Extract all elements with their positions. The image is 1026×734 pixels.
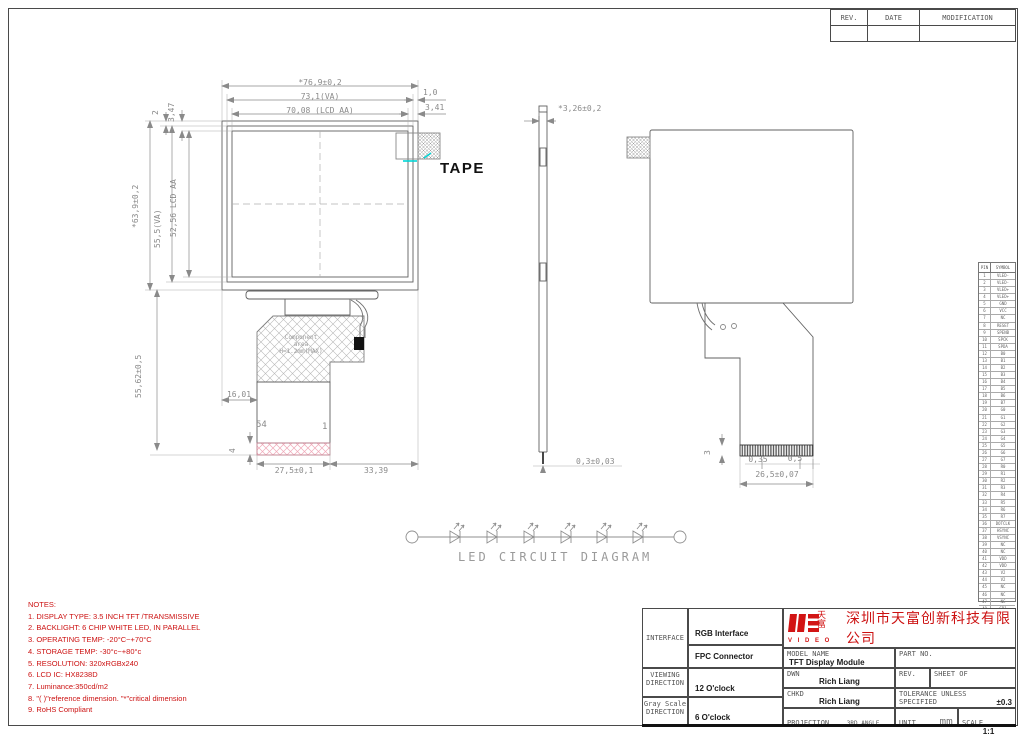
dim-rear-strip: 3 [703, 450, 712, 455]
partno-label: PART NO. [899, 650, 1015, 658]
grayscale-label-cell: Gray Scale DIRECTION [642, 697, 688, 726]
dim-rear-finger-width: 0,35 [742, 455, 774, 464]
note-item: 7. Luminance:350cd/m2 [28, 681, 200, 693]
pin-header: PIN [979, 263, 991, 272]
notes-list: 1. DISPLAY TYPE: 3.5 INCH TFT /TRANSMISS… [28, 611, 200, 716]
pin-table-row: 25 G5 [979, 443, 1015, 450]
pin-table-row: 7 NC [979, 315, 1015, 322]
pin-table-row: 5 GND [979, 301, 1015, 308]
dwn-value: Rich Liang [819, 677, 894, 686]
pin-table-row: 23 G3 [979, 429, 1015, 436]
pin-table-row: 4 VLED+ [979, 294, 1015, 301]
viewing-label-line1: VIEWING [643, 671, 687, 679]
dim-front-width-aa: 70,08 (LCD AA) [255, 106, 385, 115]
revision-table: REV. DATE MODIFICATION [830, 9, 1016, 42]
tape-label: TAPE [440, 160, 485, 177]
pin-table-row: 21 G1 [979, 415, 1015, 422]
interface-rgb: RGB Interface [695, 629, 748, 638]
symbol-header: SYMBOL [991, 263, 1015, 272]
pin-table-row: 38 VSYNC [979, 535, 1015, 542]
pin-table-row: 36 DOTCLK [979, 521, 1015, 528]
company-cell: V I D E O 天 富 深圳市天富创新科技有限公司 [783, 608, 1016, 648]
led-symbol [487, 523, 501, 543]
dim-fpc-strip: 4 [228, 448, 237, 453]
dim-front-height-va: 55,5(VA) [153, 209, 162, 248]
dim-front-topleft-small: 2 [151, 110, 160, 115]
pin-table-row: 26 G6 [979, 450, 1015, 457]
wire-connector [354, 337, 364, 350]
pin-table-row: 20 G0 [979, 407, 1015, 414]
scale-value: 1:1 [962, 727, 1015, 734]
note-item: 4. STORAGE TEMP: -30°c~+80°c [28, 646, 200, 658]
pin-table-row: 3 VLED+ [979, 287, 1015, 294]
sheet-cell: SHEET OF [930, 668, 1016, 688]
front-dimension-lines [145, 80, 418, 470]
tolerance-label-line1: TOLERANCE UNLESS [899, 690, 1012, 698]
pin-table-row: 19 B7 [979, 400, 1015, 407]
dim-rear-finger-pitch: 0,5 [782, 454, 808, 463]
grayscale-value: 6 O'clock [695, 713, 730, 722]
tolerance-cell: TOLERANCE UNLESS SPECIFIED ±0.3 [895, 688, 1016, 708]
component-area-line3: H=1.2mm(MAX) [264, 348, 338, 355]
viewing-label-cell: VIEWING DIRECTION [642, 668, 688, 697]
pin-table-row: 39 NC [979, 542, 1015, 549]
rear-view [627, 130, 853, 456]
logo-video-text: V I D E O [788, 638, 832, 644]
led-symbol [561, 523, 575, 543]
dim-front-topleft-small2: 3,47 [167, 103, 176, 122]
led-symbol [633, 523, 647, 543]
company-name: 深圳市天富创新科技有限公司 [846, 608, 1015, 648]
logo-cjk: 天 富 [817, 612, 826, 630]
pin-table-row: 31 R3 [979, 485, 1015, 492]
dim-front-width-outer: *76,9±0,2 [250, 78, 390, 87]
component-area-line1: Component [264, 334, 338, 341]
pin-table-row: 28 R0 [979, 464, 1015, 471]
pin1-label: 1 [322, 422, 327, 432]
dim-front-right-small2: 3,41 [425, 103, 444, 112]
interface-value1-cell: RGB Interface [688, 608, 783, 645]
pin-table-row: 32 R4 [979, 492, 1015, 499]
pin-table-row: 17 B5 [979, 386, 1015, 393]
front-dimension-arrows [150, 86, 446, 465]
pin-table-row: 43 V2 [979, 570, 1015, 577]
tape-area-rear [627, 137, 650, 158]
dim-side-bottom: 0,3±0,03 [576, 457, 615, 466]
dim-side-thickness: *3,26±0,2 [558, 104, 601, 113]
pin-table-row: 33 R5 [979, 500, 1015, 507]
note-item: 9. RoHS Compliant [28, 704, 200, 716]
pin-table-row: 41 VDD [979, 556, 1015, 563]
note-item: 8. "( )"reference dimension. "*"critical… [28, 693, 200, 705]
note-item: 5. RESOLUTION: 320xRGBx240 [28, 658, 200, 670]
dim-fpc-width: 27,5±0,1 [255, 466, 333, 475]
note-item: 3. OPERATING TEMP: -20°C~+70°C [28, 634, 200, 646]
fpc-contact-strip [257, 443, 330, 455]
pin-table-row: 14 B2 [979, 365, 1015, 372]
pin-table-row: 2 VLED- [979, 280, 1015, 287]
pin-table-row: 27 G7 [979, 457, 1015, 464]
viewing-value: 12 O'clock [695, 684, 735, 693]
rev-label: REV. [899, 670, 929, 678]
revision-header-row: REV. DATE MODIFICATION [830, 9, 1016, 26]
pin-table-row: 46 NC [979, 592, 1015, 599]
model-cell: MODEL NAME TFT Display Module [783, 648, 895, 668]
logo-cjk-bottom: 富 [817, 621, 826, 630]
pin-table-row: 29 R1 [979, 471, 1015, 478]
notes-title: NOTES: [28, 599, 200, 611]
led-symbol [450, 523, 464, 543]
pin-table-row: 16 B4 [979, 379, 1015, 386]
interface-fpc: FPC Connector [695, 652, 753, 661]
dim-front-width-va: 73,1(VA) [260, 92, 380, 101]
drawing-sheet: *76,9±0,2 73,1(VA) 70,08 (LCD AA) 1,0 3,… [0, 0, 1026, 734]
led-circuit-caption: LED CIRCUIT DIAGRAM [458, 550, 638, 564]
pin-table-row: 18 B6 [979, 393, 1015, 400]
pin-table-row: 37 HSYNC [979, 528, 1015, 535]
tolerance-value: ±0.3 [996, 698, 1012, 707]
dwn-cell: DWN Rich Liang [783, 668, 895, 688]
pin-table-row: 34 R6 [979, 507, 1015, 514]
pin-table-row: 45 NC [979, 584, 1015, 591]
pin-table-row: 24 G4 [979, 436, 1015, 443]
revision-header-modification: MODIFICATION [920, 9, 1016, 26]
note-item: 2. BACKLIGHT: 6 CHIP WHITE LED, IN PARAL… [28, 622, 200, 634]
pin-table-row: 22 G2 [979, 422, 1015, 429]
dim-front-right-small: 1,0 [423, 88, 437, 97]
revision-empty-row [830, 26, 1016, 42]
front-view [222, 121, 440, 455]
pin-table-row: 9 SPENB [979, 330, 1015, 337]
pin-table-row: 44 V2 [979, 577, 1015, 584]
pin-table-row: 8 RESET [979, 323, 1015, 330]
note-item: 6. LCD IC: HX8238D [28, 669, 200, 681]
pin-table-row: 15 B3 [979, 372, 1015, 379]
tolerance-label-line2: SPECIFIED [899, 698, 937, 707]
pin-table-header: PIN SYMBOL [979, 263, 1015, 273]
dim-fpc-height: 55,62±0,5 [134, 355, 143, 398]
interface-label: INTERFACE [646, 634, 684, 642]
fpc-tail [257, 382, 330, 443]
pin-table-row: 1 VLED- [979, 273, 1015, 280]
viewing-value-cell: 12 O'clock [688, 668, 783, 697]
pin-table-row: 30 R2 [979, 478, 1015, 485]
partno-cell: PART NO. [895, 648, 1016, 668]
interface-value2-cell: FPC Connector [688, 645, 783, 668]
note-item: 1. DISPLAY TYPE: 3.5 INCH TFT /TRANSMISS… [28, 611, 200, 623]
side-view [539, 106, 547, 464]
dim-rear-conn-width: 26,5±0,07 [745, 470, 809, 479]
grayscale-label-line2: DIRECTION [643, 708, 687, 716]
pin-table-row: 10 SPCK [979, 337, 1015, 344]
led-symbol [524, 523, 538, 543]
pin-table-row: 6 VCC [979, 308, 1015, 315]
component-area-note: Component area H=1.2mm(MAX) [264, 334, 338, 355]
dim-front-height-aa: 52,56 LCD AA [169, 179, 178, 237]
dim-fpc-offset: 16,01 [218, 390, 260, 399]
led-circuit [406, 523, 686, 543]
pin-table-row: 12 B0 [979, 351, 1015, 358]
revision-header-rev: REV. [830, 9, 868, 26]
pin-table-body: 1 VLED- 2 VLED- 3 VLED+ 4 VLED+ [979, 273, 1015, 655]
pin-table-row: 47 NC [979, 599, 1015, 606]
pin54-label: 54 [256, 420, 267, 430]
led-symbol [597, 523, 611, 543]
dim-front-height-outer: *63,9±0,2 [131, 185, 140, 228]
model-value: TFT Display Module [789, 658, 894, 667]
component-area-line2: area [264, 341, 338, 348]
viewing-label-line2: DIRECTION [643, 679, 687, 687]
interface-label-cell: INTERFACE [642, 608, 688, 668]
pin-table-row: 35 R7 [979, 514, 1015, 521]
chkd-value: Rich Liang [819, 697, 894, 706]
center-lines [232, 131, 408, 277]
revision-header-date: DATE [868, 9, 920, 26]
title-block-bottom-bar [642, 724, 1016, 727]
pin-table: PIN SYMBOL 1 VLED- 2 VLED- 3 VLED+ [978, 262, 1016, 602]
model-label: MODEL NAME [787, 650, 894, 658]
chkd-cell: CHKD Rich Liang [783, 688, 895, 708]
pin-table-row: 40 NC [979, 549, 1015, 556]
rev-cell: REV. [895, 668, 930, 688]
pin-table-row: 13 B1 [979, 358, 1015, 365]
notes-block: NOTES: 1. DISPLAY TYPE: 3.5 INCH TFT /TR… [28, 599, 200, 716]
dim-fpc-right: 33,39 [350, 466, 402, 475]
grayscale-label-line1: Gray Scale [643, 700, 687, 708]
grayscale-value-cell: 6 O'clock [688, 697, 783, 726]
pin-table-row: 11 SPDA [979, 344, 1015, 351]
pin-table-row: 42 VDD [979, 563, 1015, 570]
sheet-label: SHEET OF [934, 670, 1015, 678]
